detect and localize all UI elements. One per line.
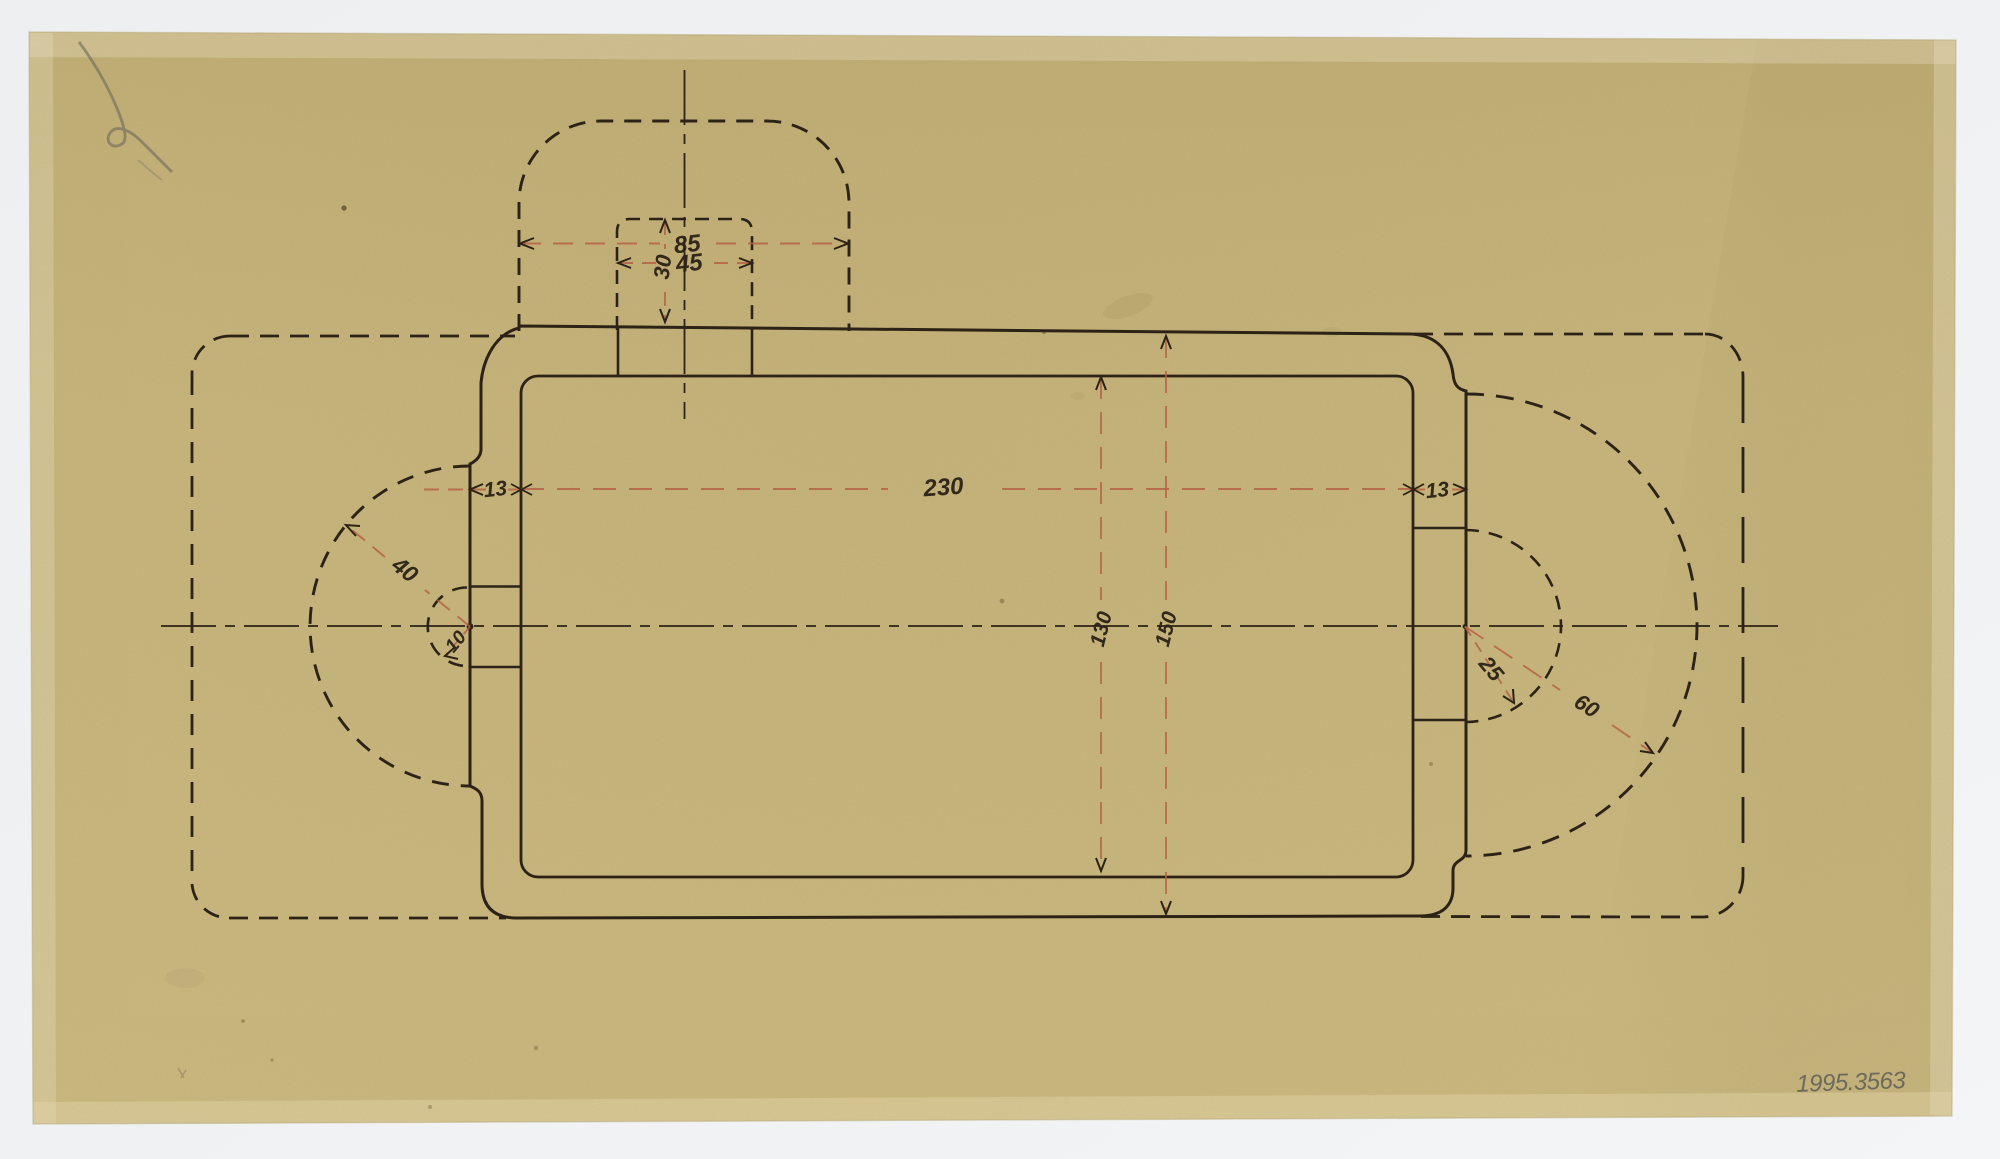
svg-text:13: 13 bbox=[1425, 478, 1451, 503]
svg-text:1995.3563: 1995.3563 bbox=[1796, 1067, 1907, 1098]
svg-text:13: 13 bbox=[483, 477, 509, 502]
svg-text:30: 30 bbox=[649, 253, 677, 281]
svg-text:230: 230 bbox=[922, 473, 965, 503]
svg-text:45: 45 bbox=[674, 249, 705, 279]
